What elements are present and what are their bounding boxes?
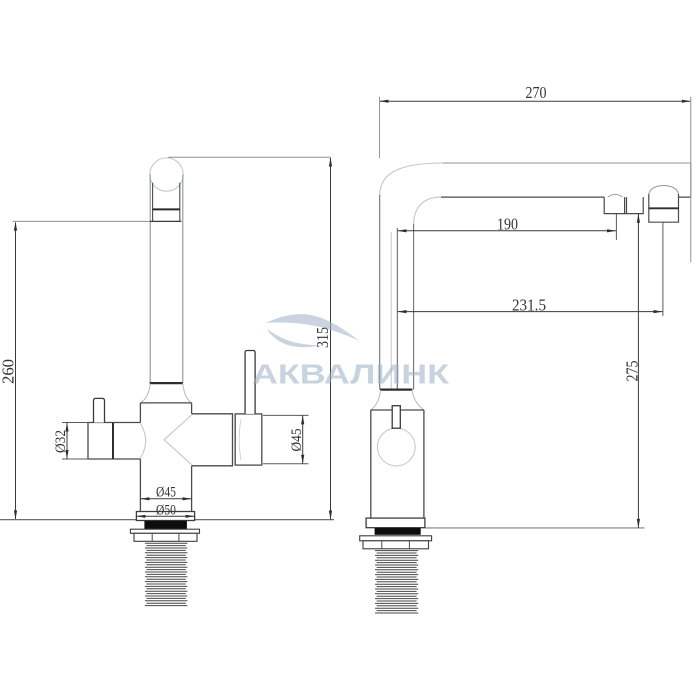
svg-text:Ø50: Ø50	[156, 503, 176, 519]
svg-text:315: 315	[313, 327, 332, 348]
svg-text:270: 270	[526, 83, 547, 102]
svg-text:АКВАЛИНК: АКВАЛИНК	[252, 359, 450, 390]
svg-text:275: 275	[623, 361, 642, 382]
svg-text:190: 190	[497, 215, 518, 234]
svg-text:Ø32: Ø32	[53, 430, 69, 453]
svg-text:Ø45: Ø45	[156, 484, 176, 500]
svg-text:260: 260	[0, 359, 18, 384]
svg-text:Ø45: Ø45	[289, 429, 305, 452]
svg-text:231.5: 231.5	[512, 295, 546, 314]
